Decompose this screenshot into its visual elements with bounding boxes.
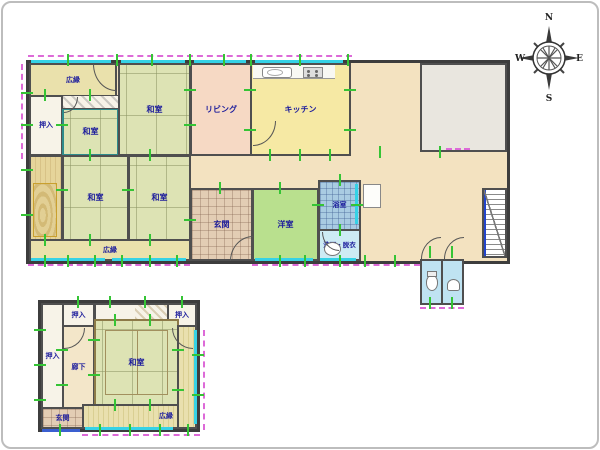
module-tick xyxy=(89,149,91,161)
module-tick xyxy=(347,54,349,66)
opening-dashed-line xyxy=(203,330,205,430)
module-tick xyxy=(149,399,151,411)
room-washitsu-north: 和室 xyxy=(118,63,191,156)
room-western: 洋室 xyxy=(252,188,319,261)
module-tick xyxy=(244,89,256,91)
window-glass-line xyxy=(194,60,246,63)
toilet-icon xyxy=(447,279,460,291)
module-tick xyxy=(122,189,134,191)
kitchen-counter xyxy=(253,65,335,79)
room-label: 和室 xyxy=(83,128,99,136)
module-tick xyxy=(94,255,96,267)
module-tick xyxy=(67,54,69,66)
module-tick xyxy=(44,89,46,101)
room-washitsu-center: 和室 xyxy=(128,155,191,241)
room-label: 押入 xyxy=(39,122,53,129)
module-tick xyxy=(351,204,363,206)
module-tick xyxy=(121,255,123,267)
module-tick xyxy=(89,89,91,101)
module-tick xyxy=(339,255,341,267)
room-label: 玄関 xyxy=(214,221,230,229)
module-tick xyxy=(44,234,46,246)
module-tick xyxy=(77,296,79,308)
entrance-door-line xyxy=(42,429,80,432)
module-tick xyxy=(312,204,324,206)
opening-dashed-line xyxy=(446,148,470,150)
module-tick xyxy=(21,214,33,216)
room-label: 押入 xyxy=(72,312,86,319)
opening-dashed-line xyxy=(28,264,190,266)
module-tick xyxy=(88,374,100,376)
window-glass-line xyxy=(31,60,111,63)
module-tick xyxy=(172,349,184,351)
module-tick xyxy=(429,246,431,258)
module-tick xyxy=(34,399,46,401)
room-label: 廊下 xyxy=(72,364,86,371)
water-heater xyxy=(363,184,381,208)
module-tick xyxy=(67,255,69,267)
wood-door xyxy=(33,183,57,237)
floor-plan-canvas: 広縁 押入 和室 和室 リビング キッチン 和室 xyxy=(0,0,600,450)
compass-east-label: E xyxy=(576,54,583,64)
stove-icon xyxy=(303,67,323,78)
module-tick xyxy=(114,314,116,326)
module-tick xyxy=(304,255,306,267)
module-tick xyxy=(184,89,196,91)
module-tick xyxy=(56,384,68,386)
window-glass-line xyxy=(320,258,356,261)
module-tick xyxy=(56,124,68,126)
room-closet-west: 押入 xyxy=(41,303,64,409)
module-tick xyxy=(451,297,453,309)
window-glass-line xyxy=(121,60,185,63)
module-tick xyxy=(429,297,431,309)
compass-south-label: S xyxy=(546,94,553,102)
room-wood-nook xyxy=(29,155,63,241)
annex-building: 押入 押入 廊下 押入 和室 広縁 玄関 xyxy=(38,300,200,432)
module-tick xyxy=(44,255,46,267)
module-tick xyxy=(149,149,151,161)
futon-closet-hatch xyxy=(135,305,167,319)
module-tick xyxy=(21,124,33,126)
compass-west-label: W xyxy=(514,54,526,64)
main-building: 広縁 押入 和室 和室 リビング キッチン 和室 xyxy=(26,60,510,264)
room-label: リビング xyxy=(205,106,237,114)
module-tick xyxy=(223,54,225,66)
compass-north-label: N xyxy=(545,13,553,23)
module-tick xyxy=(379,146,381,158)
module-tick xyxy=(189,54,191,66)
module-tick xyxy=(339,174,341,186)
room-label: 玄関 xyxy=(56,415,70,422)
module-tick xyxy=(176,255,178,267)
module-tick xyxy=(339,224,341,236)
room-washitsu-annex: 和室 xyxy=(94,319,179,406)
opening-dashed-line xyxy=(420,307,464,309)
window-glass-line xyxy=(194,330,197,424)
module-tick xyxy=(88,339,100,341)
room-gray xyxy=(420,63,507,152)
room-label: 広縁 xyxy=(66,77,80,84)
room-entrance-annex: 玄関 xyxy=(41,407,84,429)
room-label: 広縁 xyxy=(159,413,173,420)
module-tick xyxy=(89,234,91,246)
module-tick xyxy=(192,354,204,356)
module-tick xyxy=(56,189,68,191)
room-label: 和室 xyxy=(88,194,104,202)
module-tick xyxy=(159,424,161,436)
room-label: キッチン xyxy=(285,106,317,114)
module-tick xyxy=(116,54,118,66)
module-tick xyxy=(269,149,271,161)
module-tick xyxy=(192,394,204,396)
module-tick xyxy=(99,424,101,436)
room-toilet-1 xyxy=(420,259,443,305)
module-tick xyxy=(187,424,189,436)
module-tick xyxy=(279,255,281,267)
module-tick xyxy=(34,329,46,331)
toilet-icon xyxy=(426,275,438,291)
module-tick xyxy=(129,424,131,436)
room-label: 押入 xyxy=(46,353,60,360)
module-tick xyxy=(394,255,396,267)
compass-rose-icon: N S W E xyxy=(513,8,585,102)
module-tick xyxy=(56,349,68,351)
room-washitsu-west: 和室 xyxy=(62,155,129,241)
room-label: 和室 xyxy=(129,359,145,367)
module-tick xyxy=(34,364,46,366)
module-tick xyxy=(219,182,221,194)
opening-dashed-line xyxy=(21,64,23,159)
module-tick xyxy=(144,296,146,308)
module-tick xyxy=(299,54,301,66)
module-tick xyxy=(109,296,111,308)
kitchen-sink-icon xyxy=(262,67,292,78)
room-label: 洋室 xyxy=(278,221,294,229)
module-tick xyxy=(21,169,33,171)
module-tick xyxy=(149,314,151,326)
module-tick xyxy=(250,54,252,66)
room-label: 押入 xyxy=(175,312,189,319)
module-tick xyxy=(151,54,153,66)
module-tick xyxy=(329,149,331,161)
room-label: 広縁 xyxy=(103,247,117,254)
module-tick xyxy=(184,124,196,126)
module-tick xyxy=(439,146,441,158)
module-tick xyxy=(59,424,61,436)
module-tick xyxy=(451,246,453,258)
module-tick xyxy=(364,255,366,267)
module-tick xyxy=(244,129,256,131)
module-tick xyxy=(181,296,183,308)
module-tick xyxy=(172,389,184,391)
room-label: 和室 xyxy=(147,106,163,114)
room-label: 和室 xyxy=(152,194,168,202)
module-tick xyxy=(279,182,281,194)
module-tick xyxy=(344,129,356,131)
module-tick xyxy=(149,234,151,246)
room-label: 浴室 xyxy=(333,202,347,209)
module-tick xyxy=(184,219,196,221)
room-living: リビング xyxy=(190,63,252,156)
module-tick xyxy=(299,149,301,161)
staircase xyxy=(482,188,507,258)
module-tick xyxy=(344,89,356,91)
module-tick xyxy=(114,399,116,411)
module-tick xyxy=(149,255,151,267)
module-tick xyxy=(21,92,33,94)
